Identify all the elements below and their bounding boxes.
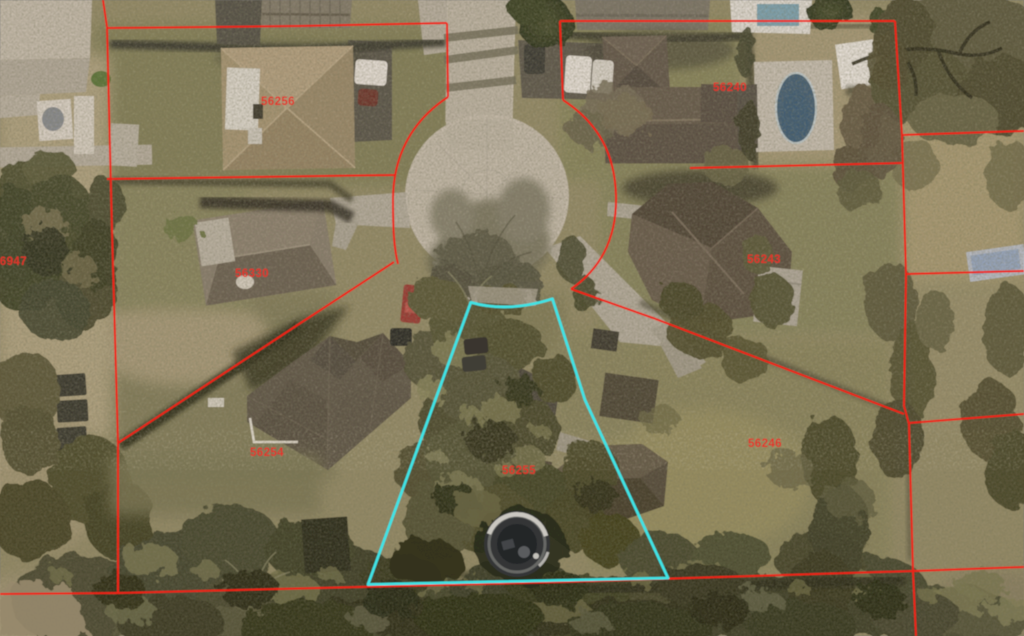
svg-text:56255: 56255 <box>502 465 536 477</box>
svg-text:56246: 56246 <box>748 438 782 450</box>
svg-text:56243: 56243 <box>747 254 781 266</box>
svg-text:56256: 56256 <box>261 96 295 108</box>
svg-text:56240: 56240 <box>713 82 747 94</box>
svg-text:56330: 56330 <box>235 268 269 280</box>
svg-text:56947: 56947 <box>0 256 27 268</box>
svg-text:56254: 56254 <box>250 447 284 459</box>
